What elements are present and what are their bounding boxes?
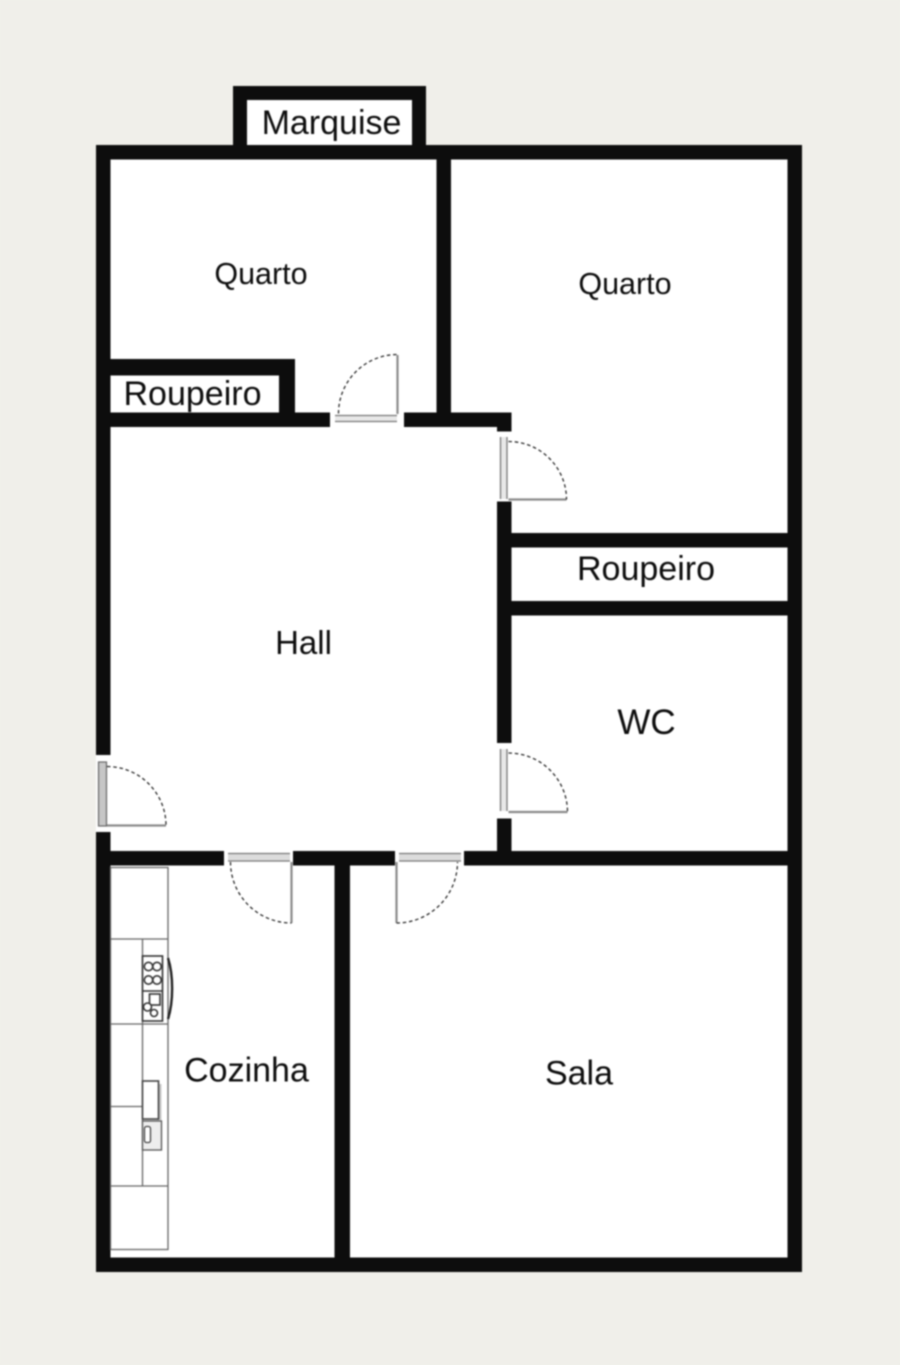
svg-text:Hall: Hall	[275, 624, 332, 661]
svg-text:Sala: Sala	[545, 1055, 613, 1093]
svg-text:Quarto: Quarto	[578, 267, 671, 301]
svg-text:Marquise: Marquise	[262, 104, 402, 142]
svg-text:Cozinha: Cozinha	[184, 1052, 309, 1090]
svg-text:Quarto: Quarto	[214, 257, 307, 291]
svg-text:Roupeiro: Roupeiro	[577, 550, 715, 588]
svg-text:WC: WC	[617, 703, 675, 742]
svg-text:Roupeiro: Roupeiro	[124, 375, 262, 413]
